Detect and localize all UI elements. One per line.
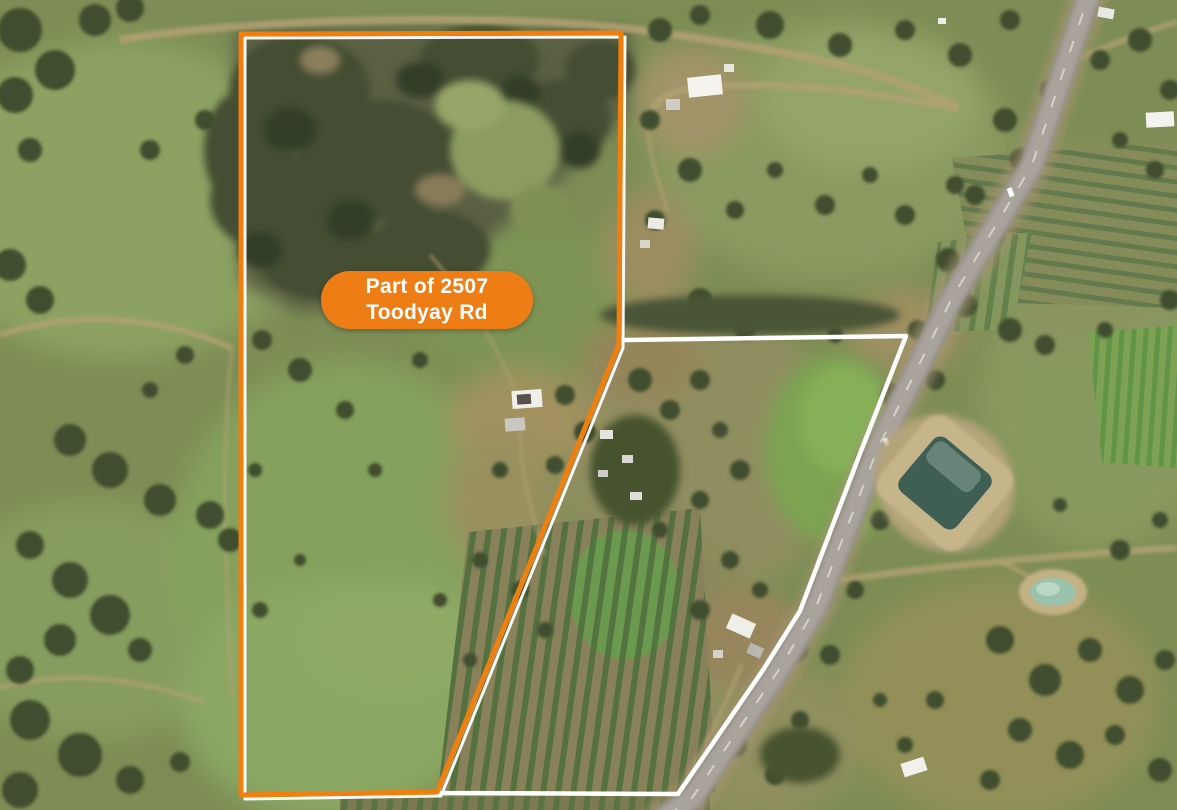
satellite-imagery — [0, 0, 1177, 810]
aerial-property-map: Part of 2507 Toodyay Rd — [0, 0, 1177, 810]
farm-dam-small — [1019, 569, 1087, 615]
address-label-line2: Toodyay Rd — [366, 300, 488, 326]
property-address-label: Part of 2507 Toodyay Rd — [321, 271, 533, 329]
address-label-line1: Part of 2507 — [366, 274, 489, 300]
